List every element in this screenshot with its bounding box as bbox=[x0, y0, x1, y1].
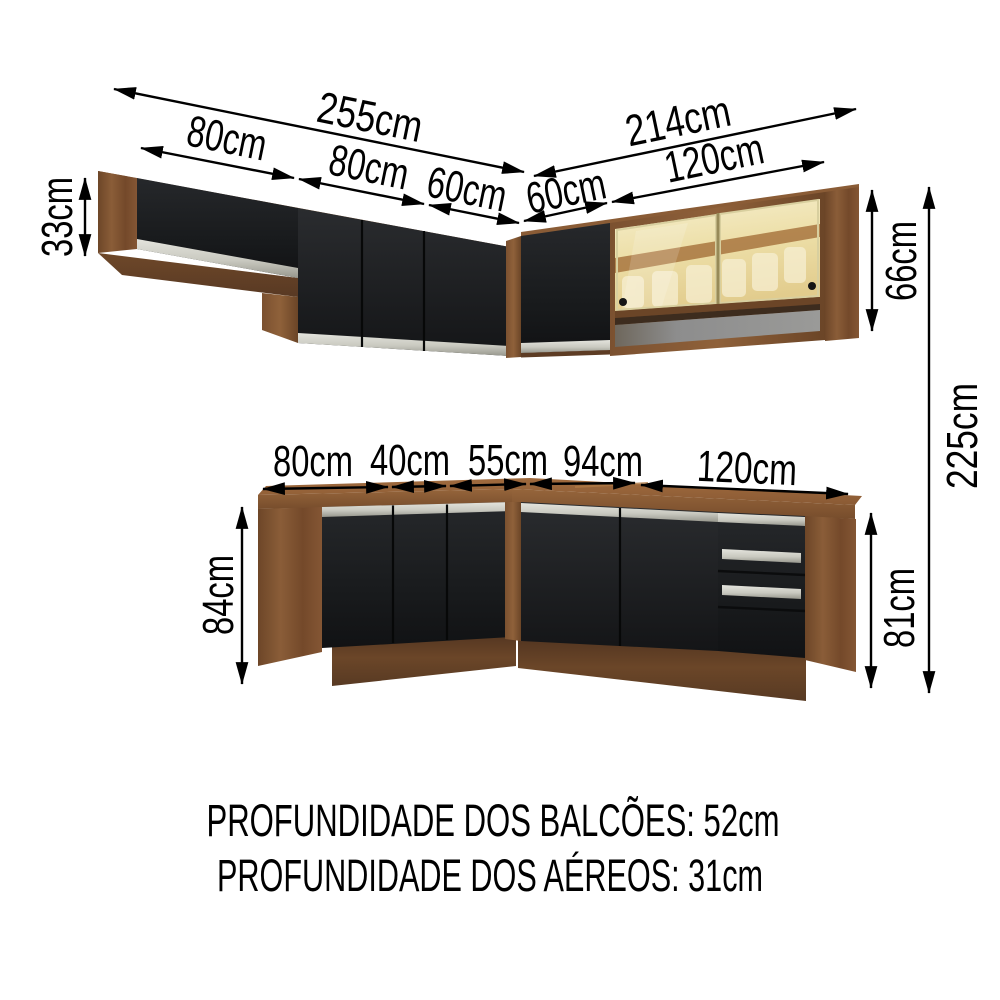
footnote-counter-depth: PROFUNDIDADE DOS BALCÕES: 52cm bbox=[207, 795, 780, 846]
upper-corner-post bbox=[506, 236, 521, 358]
drawer-unit bbox=[718, 512, 805, 658]
footnote-upper-depth: PROFUNDIDADE DOS AÉREOS: 31cm bbox=[217, 850, 763, 901]
glass-door-knob bbox=[619, 298, 627, 306]
label-height-225: 225cm bbox=[938, 383, 987, 489]
upper-short-side-panel bbox=[98, 171, 137, 253]
footnotes: PROFUNDIDADE DOS BALCÕES: 52cm PROFUNDID… bbox=[207, 795, 780, 901]
label-base-seg4: 94cm bbox=[563, 437, 643, 486]
base-left-side-panel bbox=[258, 507, 322, 666]
label-upper-right-seg1: 60cm bbox=[522, 159, 610, 223]
upper-right-side-panel bbox=[825, 187, 859, 341]
diagram-canvas: 255cm 80cm 80cm 60cm 214cm 60cm 120cm 33… bbox=[0, 0, 1000, 1000]
arrow-base-seg2 bbox=[392, 486, 446, 487]
glass-door-knob bbox=[808, 282, 816, 290]
upper-step-side-panel bbox=[262, 293, 298, 343]
base-right-side-panel bbox=[805, 516, 856, 672]
label-base-seg2: 40cm bbox=[370, 436, 450, 485]
label-height-33: 33cm bbox=[33, 177, 82, 257]
base-cabinets-render bbox=[258, 478, 862, 701]
label-base-seg3: 55cm bbox=[468, 436, 548, 485]
label-height-66: 66cm bbox=[877, 221, 926, 301]
label-upper-left-seg1: 80cm bbox=[183, 107, 271, 171]
product-dimension-diagram: 255cm 80cm 80cm 60cm 214cm 60cm 120cm 33… bbox=[0, 0, 1000, 1000]
upper-tall-doors bbox=[298, 208, 510, 356]
label-height-81: 81cm bbox=[875, 568, 924, 648]
base-left-doors bbox=[322, 502, 512, 648]
upper-corner-door bbox=[521, 223, 610, 353]
base-corner-post bbox=[505, 502, 521, 641]
label-base-seg1: 80cm bbox=[273, 437, 353, 486]
label-base-seg5: 120cm bbox=[696, 442, 798, 495]
label-height-84: 84cm bbox=[194, 555, 243, 635]
